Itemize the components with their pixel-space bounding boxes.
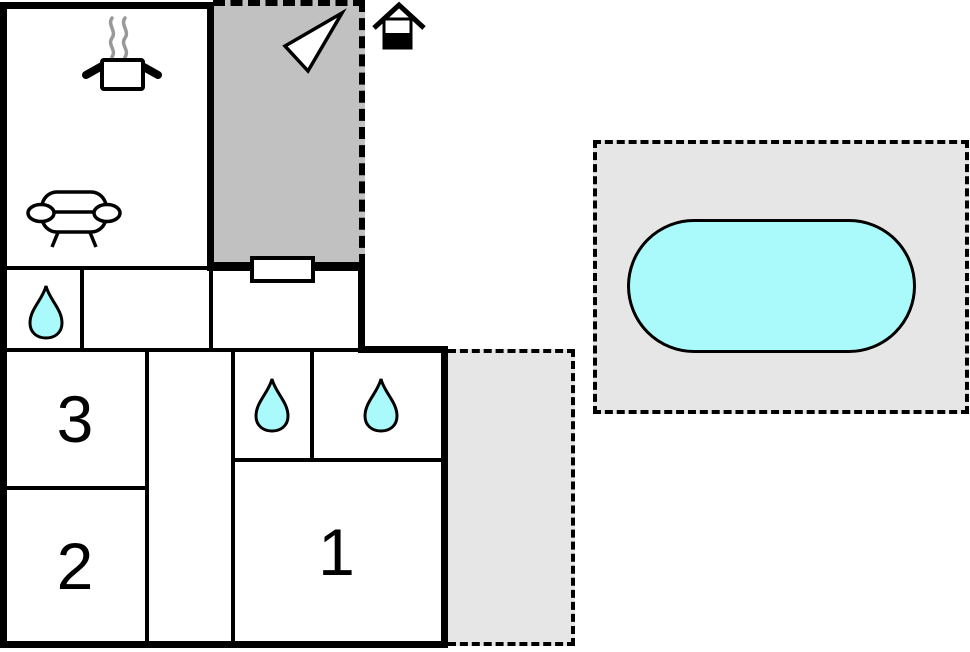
sofa-icon [26, 186, 122, 250]
wall-house-left [0, 2, 7, 648]
water-drop-icon [27, 283, 65, 341]
water-drop-icon [253, 376, 291, 434]
wall-hall-left [145, 350, 149, 645]
floorplan-canvas: 1 2 3 [0, 0, 970, 652]
wall-house-bottom [0, 641, 448, 648]
wall-house-right [441, 346, 448, 648]
swimming-pool [627, 219, 916, 353]
north-arrow-icon [278, 8, 348, 74]
room-1-number: 1 [318, 514, 355, 590]
room-1-label: 1 [232, 462, 441, 641]
patio-area [448, 349, 575, 646]
room-2-number: 2 [57, 528, 94, 604]
room-2-label: 2 [7, 490, 143, 641]
wall-mid-divider [209, 270, 213, 350]
room-3-label: 3 [7, 352, 143, 486]
water-drop-icon [362, 376, 400, 434]
room-3-number: 3 [57, 381, 94, 457]
door [250, 256, 315, 283]
wall-bathAB-divider [310, 350, 314, 462]
wall-kitchen-top [0, 2, 214, 9]
house-icon [371, 1, 427, 53]
wall-lower-top-right [358, 346, 448, 353]
wall-kitchen-right [207, 2, 214, 270]
cooking-pot-icon [78, 14, 164, 96]
wall-midstrip-right [358, 262, 365, 353]
wall-kitchen-bottom [0, 266, 214, 270]
wall-bath-main-right [80, 270, 84, 352]
